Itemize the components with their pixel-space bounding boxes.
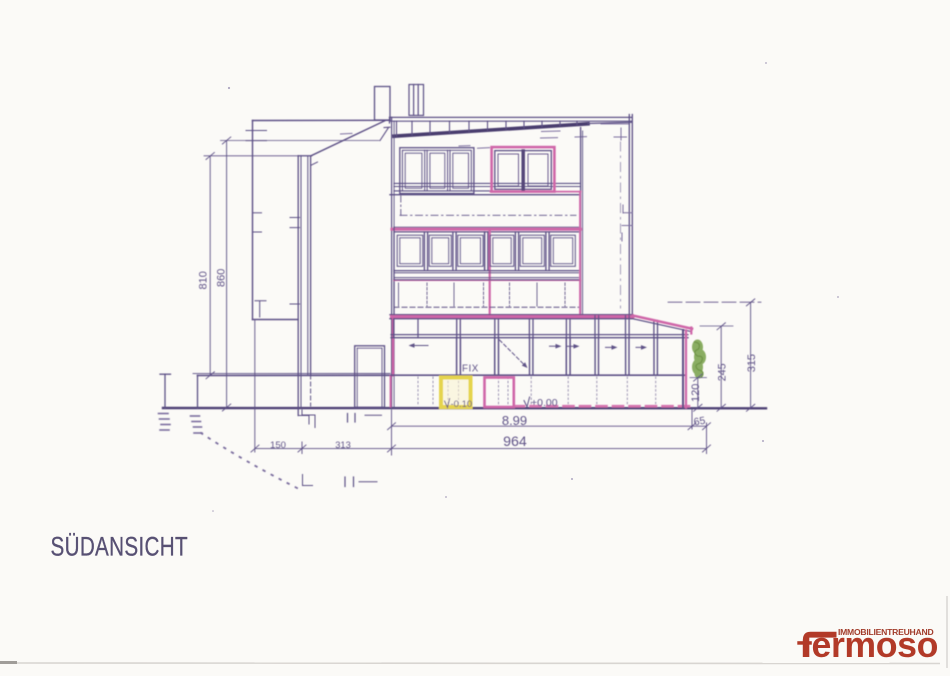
svg-text:245: 245 <box>716 363 728 381</box>
svg-text:964: 964 <box>503 434 527 450</box>
svg-text:315: 315 <box>746 354 758 372</box>
svg-text:SÜDANSICHT: SÜDANSICHT <box>51 532 188 562</box>
svg-text:150: 150 <box>270 440 286 451</box>
svg-text:ermoso: ermoso <box>812 624 939 665</box>
svg-text:313: 313 <box>335 440 351 450</box>
svg-text:8.99: 8.99 <box>502 413 527 428</box>
svg-text:-0.10: -0.10 <box>451 399 473 410</box>
svg-text:860: 860 <box>216 269 228 287</box>
svg-text:+0.00: +0.00 <box>531 397 558 409</box>
svg-text:65: 65 <box>693 415 707 429</box>
svg-text:120: 120 <box>690 384 702 402</box>
svg-text:FIX: FIX <box>462 364 479 375</box>
svg-text:810: 810 <box>198 271 210 289</box>
